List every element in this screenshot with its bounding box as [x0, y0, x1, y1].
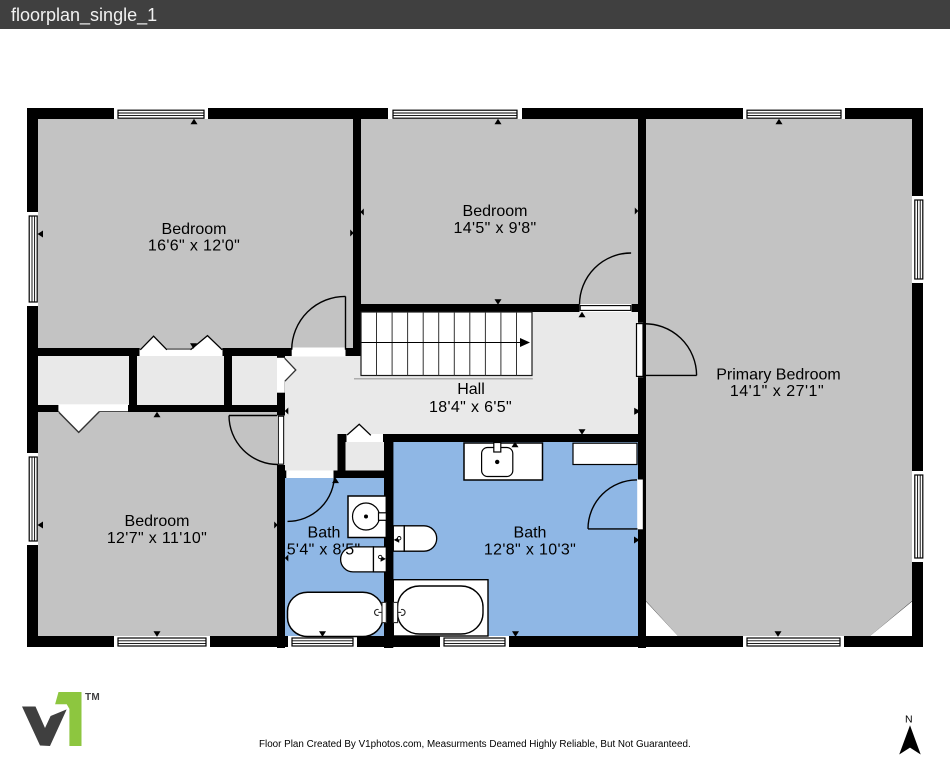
svg-text:12'7" x 11'10": 12'7" x 11'10"	[107, 530, 207, 547]
svg-text:18'4" x 6'5": 18'4" x 6'5"	[429, 399, 512, 416]
svg-text:Bath: Bath	[308, 524, 341, 541]
svg-text:5'4" x 8'5": 5'4" x 8'5"	[287, 542, 361, 559]
svg-text:floorplan_single_1: floorplan_single_1	[11, 5, 157, 26]
svg-text:TM: TM	[85, 692, 100, 703]
svg-text:Bedroom: Bedroom	[162, 221, 227, 238]
svg-text:Bedroom: Bedroom	[125, 513, 190, 530]
svg-text:Floor Plan Created By V1photos: Floor Plan Created By V1photos.com, Meas…	[259, 739, 691, 750]
svg-text:Bedroom: Bedroom	[463, 203, 528, 220]
svg-text:14'1" x 27'1": 14'1" x 27'1"	[730, 383, 824, 400]
svg-text:16'6" x 12'0": 16'6" x 12'0"	[148, 238, 240, 255]
svg-text:N: N	[905, 714, 913, 726]
svg-text:Hall: Hall	[457, 381, 485, 398]
svg-text:Bath: Bath	[514, 524, 547, 541]
svg-text:Primary Bedroom: Primary Bedroom	[716, 366, 840, 383]
svg-text:14'5" x 9'8": 14'5" x 9'8"	[453, 220, 536, 237]
svg-text:12'8" x 10'3": 12'8" x 10'3"	[484, 542, 576, 559]
